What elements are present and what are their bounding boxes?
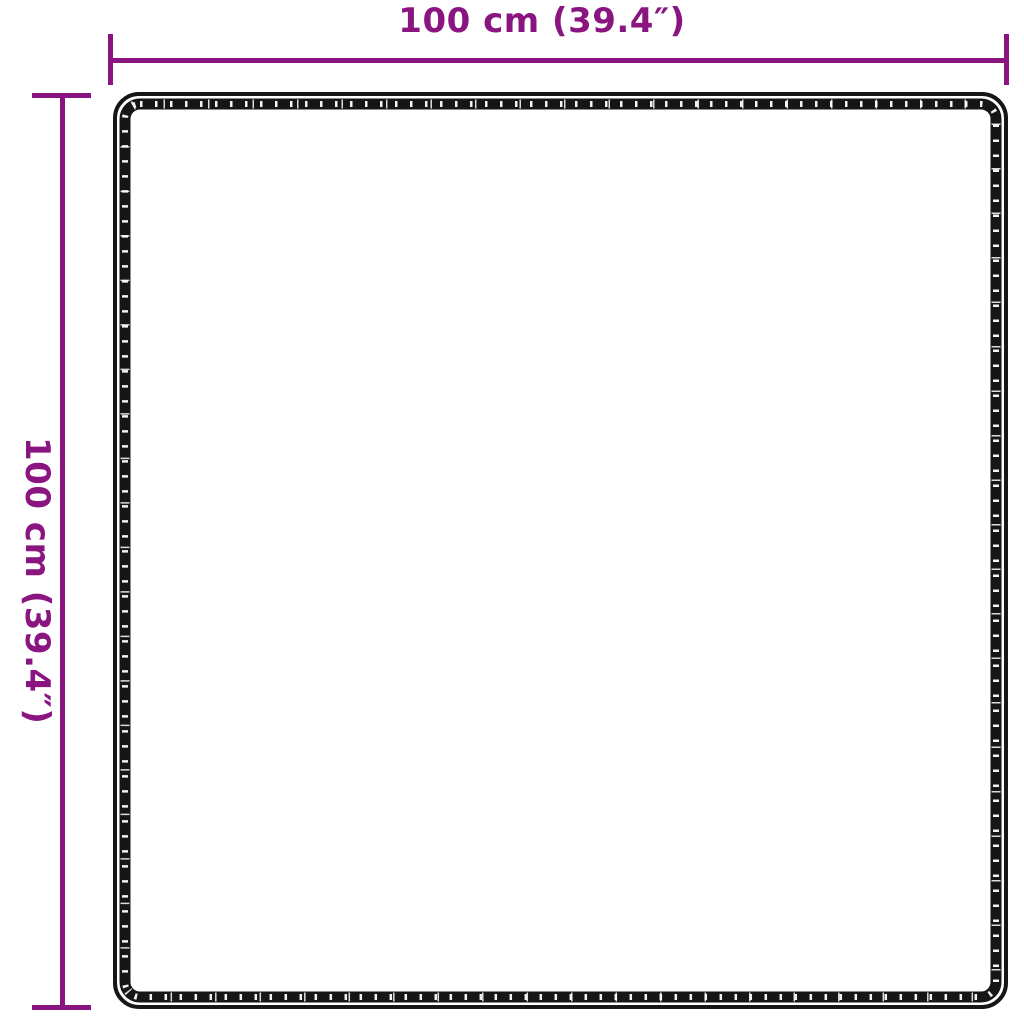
rug-border-stitches-accents: [125, 104, 996, 997]
height-dimension-end-tick: [32, 1005, 91, 1010]
height-dimension-line: [60, 93, 65, 1010]
rug-outline: [113, 92, 1008, 1009]
dimension-diagram: 100 cm (39.4″) 100 cm (39.4″): [0, 0, 1024, 1024]
rug-border-stitches: [125, 104, 996, 997]
rug-border-graphic: [113, 92, 1008, 1009]
width-dimension-end-tick: [1004, 34, 1009, 85]
height-dimension-start-tick: [32, 93, 91, 98]
width-dimension-start-tick: [108, 34, 113, 85]
width-dimension-line: [110, 58, 1007, 63]
rug-border-band: [125, 104, 996, 997]
rug-outer-edge: [115, 94, 1006, 1007]
width-dimension-label: 100 cm (39.4″): [142, 3, 942, 39]
height-dimension-label: 100 cm (39.4″): [19, 437, 55, 677]
